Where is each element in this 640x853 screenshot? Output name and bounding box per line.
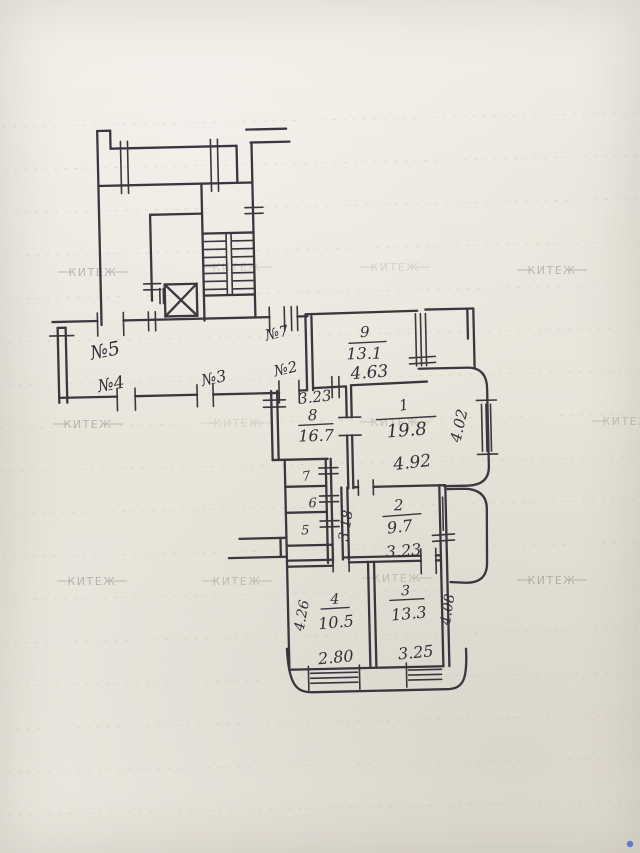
room4-area: 10.5 (317, 611, 354, 633)
watermark: КИТЕЖ (372, 572, 421, 585)
room8-number: 8 (308, 406, 318, 424)
room4-dim-bottom: 2.80 (316, 646, 354, 668)
paper-ruled-lines (0, 112, 640, 815)
door-label-n4: №4 (95, 373, 126, 398)
room1-number: 1 (398, 395, 410, 414)
blue-mark (627, 841, 633, 847)
watermark: КИТЕЖ (67, 575, 116, 588)
walls-stairwell-block (97, 127, 293, 325)
watermark: КИТЕЖ (602, 415, 640, 428)
room4-dim-side: 4.26 (291, 599, 313, 634)
watermark: КИТЕЖ (212, 575, 261, 588)
door-label-n7: №7 (262, 321, 291, 344)
room7-number: 7 (301, 469, 312, 485)
room9-number: 9 (360, 323, 370, 341)
floor-plan-canvas: КИТЕЖ КИТЕЖ КИТЕЖ КИТЕЖ КИТЕЖ КИТЕЖ КИТЕ… (0, 0, 640, 853)
room2-number: 2 (393, 496, 404, 514)
watermark: КИТЕЖ (213, 417, 262, 430)
door-label-n2: №2 (271, 357, 299, 380)
balcony (447, 488, 488, 583)
door-label-n3: №3 (198, 366, 228, 390)
room2-dim-bottom: 3.23 (385, 540, 422, 562)
plan-labels: №5 №7 №4 №3 №2 9 13.1 4.63 3.23 8 16.7 1… (87, 317, 477, 673)
wall-section-ticks (120, 138, 265, 304)
room1-dim-bottom: 4.92 (391, 451, 432, 475)
room1-area: 19.8 (386, 419, 428, 443)
room1-dim-side: 4.02 (446, 407, 471, 445)
door-label-n5: №5 (87, 337, 122, 365)
floor-plan-drawing: №5 №7 №4 №3 №2 9 13.1 4.63 3.23 8 16.7 1… (45, 122, 503, 698)
watermark: КИТЕЖ (68, 266, 117, 279)
window (408, 313, 435, 366)
room8-dim-top: 3.23 (297, 386, 332, 408)
room3-area: 13.3 (390, 602, 427, 624)
watermark: КИТЕЖ (370, 261, 419, 274)
room6-number: 6 (308, 496, 317, 511)
room3-dim-side: 4.08 (438, 593, 459, 627)
floor-plan-photo: КИТЕЖ КИТЕЖ КИТЕЖ КИТЕЖ КИТЕЖ КИТЕЖ КИТЕ… (0, 0, 640, 853)
room2-area: 9.7 (386, 516, 414, 538)
room2-dim-side: 3.18 (336, 509, 357, 542)
room3-dim-bottom: 3.25 (397, 641, 434, 663)
room5-number: 5 (301, 523, 310, 538)
watermark: КИТЕЖ (527, 264, 576, 277)
room4-number: 4 (329, 592, 339, 608)
room9-area: 13.1 (346, 344, 382, 364)
room8-area: 16.7 (298, 426, 335, 446)
room3-number: 3 (401, 583, 410, 599)
watermark: КИТЕЖ (527, 574, 576, 587)
room9-dim: 4.63 (349, 361, 389, 384)
watermark: КИТЕЖ (63, 418, 112, 431)
elevator-shaft (165, 284, 198, 317)
